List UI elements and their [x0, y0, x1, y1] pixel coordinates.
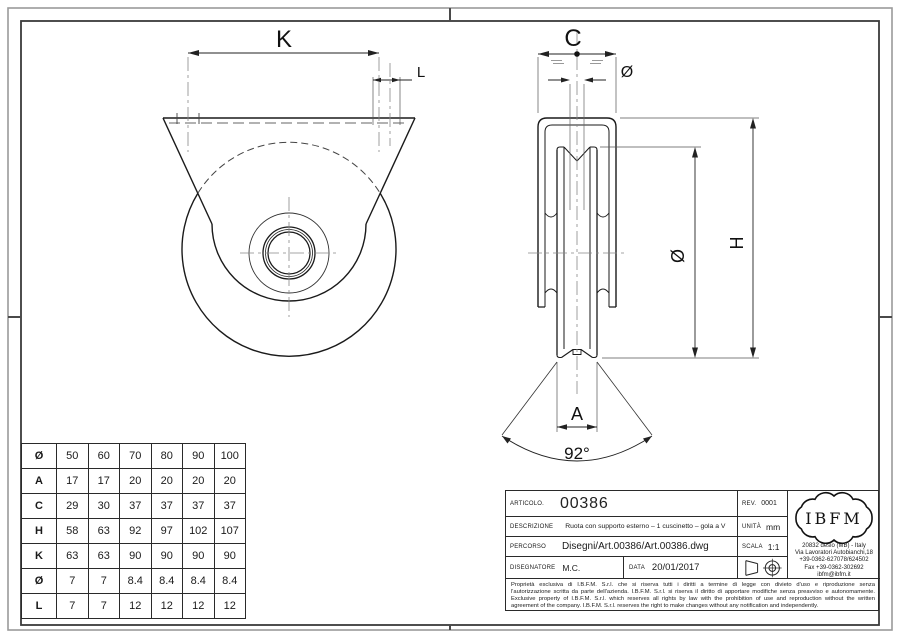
- table-cell: 63: [57, 544, 89, 569]
- table-cell: 90: [120, 544, 152, 569]
- table-cell: 100: [214, 444, 246, 469]
- table-cell: 7: [88, 569, 120, 594]
- row-header: Ø: [22, 569, 57, 594]
- copyright-line: agreement of the company. I.B.F.M. S.r.l…: [511, 603, 875, 610]
- table-cell: 107: [214, 519, 246, 544]
- percorso-cell: PERCORSO Disegni/Art.00386/Art.00386.dwg: [506, 537, 738, 557]
- table-cell: 80: [151, 444, 183, 469]
- table-cell: 37: [214, 494, 246, 519]
- front-view-drawing: K L: [163, 26, 425, 356]
- table-cell: 7: [57, 569, 89, 594]
- descrizione-label: DESCRIZIONE: [510, 524, 553, 530]
- dimension-outer-dia: Ø: [668, 147, 698, 358]
- table-cell: 30: [88, 494, 120, 519]
- table-cell: 7: [57, 594, 89, 619]
- table-cell: 37: [183, 494, 215, 519]
- table-cell: 92: [120, 519, 152, 544]
- logo-text: IBFM: [805, 509, 863, 528]
- rev-label: REV.: [742, 501, 756, 507]
- table-cell: 12: [214, 594, 246, 619]
- table-cell: 8.4: [120, 569, 152, 594]
- table-cell: 60: [88, 444, 120, 469]
- h-dimension-label: H: [727, 237, 747, 250]
- dimension-L: L: [373, 63, 425, 146]
- percorso-label: PERCORSO: [510, 544, 546, 550]
- copyright-line: Exclusive property of I.B.F.M. S.r.l. wh…: [511, 596, 875, 603]
- data-label: DATA: [629, 565, 645, 571]
- front-centerlines: [240, 197, 339, 317]
- rev-cell: REV. 0001: [738, 491, 788, 517]
- percorso-value: Disegni/Art.00386/Art.00386.dwg: [562, 541, 709, 552]
- table-cell: 7: [88, 594, 120, 619]
- unita-value: mm: [766, 522, 780, 532]
- first-angle-projection-icon: [738, 557, 787, 579]
- side-centerlines: [528, 31, 628, 394]
- table-cell: 20: [151, 469, 183, 494]
- side-view-drawing: C Ø Ø H: [502, 25, 759, 463]
- address-line: ibfm@ibfm.it: [788, 572, 880, 579]
- copyright-notice: Proprietà esclusiva di I.B.F.M. S.r.l. c…: [506, 579, 880, 612]
- table-cell: 37: [120, 494, 152, 519]
- data-cell: DATA 20/01/2017: [624, 557, 738, 579]
- rev-value: 0001: [761, 500, 777, 507]
- table-cell: 58: [57, 519, 89, 544]
- dimension-K: K: [188, 26, 379, 152]
- articolo-label: ARTICOLO.: [510, 501, 544, 507]
- row-header: Ø: [22, 444, 57, 469]
- dimension-table: Ø 50 60 70 80 90 100 A 17 17 20 20 20 20…: [21, 443, 246, 619]
- groove-angle-label: 92°: [564, 444, 590, 463]
- a-dimension-label: A: [571, 404, 583, 424]
- table-cell: 12: [151, 594, 183, 619]
- unita-cell: UNITÀ mm: [738, 517, 788, 537]
- row-header: H: [22, 519, 57, 544]
- table-cell: 90: [183, 444, 215, 469]
- unita-label: UNITÀ: [742, 524, 761, 530]
- table-cell: 12: [120, 594, 152, 619]
- table-cell: 12: [183, 594, 215, 619]
- disegnatore-value: M.C.: [562, 563, 580, 573]
- company-logo: IBFM: [788, 491, 880, 544]
- row-header: C: [22, 494, 57, 519]
- copyright-line: l'autorizzazione scritta da parte dell'a…: [511, 589, 875, 596]
- dimension-A: A: [557, 362, 597, 432]
- table-cell: 37: [151, 494, 183, 519]
- table-row: Ø 50 60 70 80 90 100: [22, 444, 246, 469]
- table-row: L 7 7 12 12 12 12: [22, 594, 246, 619]
- disegnatore-label: DISEGNATORE: [510, 565, 555, 571]
- drawing-sheet: K L: [0, 0, 900, 635]
- table-cell: 20: [183, 469, 215, 494]
- c-dimension-label: C: [564, 25, 581, 52]
- row-header: K: [22, 544, 57, 569]
- table-cell: 20: [214, 469, 246, 494]
- table-row: A 17 17 20 20 20 20: [22, 469, 246, 494]
- table-cell: 20: [120, 469, 152, 494]
- address-line: 20832 desio (MB) - Italy: [788, 543, 880, 550]
- table-cell: 63: [88, 519, 120, 544]
- scala-label: SCALA: [742, 544, 763, 550]
- table-cell: 90: [183, 544, 215, 569]
- dimension-H: H: [727, 118, 756, 358]
- wheel-outline-hidden: [198, 142, 380, 193]
- table-cell: 70: [120, 444, 152, 469]
- disegnatore-cell: DISEGNATORE M.C.: [506, 557, 624, 579]
- table-cell: 29: [57, 494, 89, 519]
- k-dimension-label: K: [276, 26, 292, 53]
- articolo-value: 00386: [560, 495, 609, 513]
- table-cell: 8.4: [214, 569, 246, 594]
- dimension-hole-dia: Ø: [548, 64, 633, 83]
- articolo-cell: ARTICOLO. 00386: [506, 491, 738, 517]
- projection-symbol-cell: [738, 557, 788, 579]
- table-cell: 102: [183, 519, 215, 544]
- hole-dia-label: Ø: [621, 64, 633, 81]
- centerline-dot: [574, 51, 580, 57]
- address-line: Fax +39-0362-302692: [788, 565, 880, 572]
- table-cell: 17: [57, 469, 89, 494]
- l-dimension-label: L: [417, 64, 425, 81]
- data-value: 20/01/2017: [652, 562, 700, 573]
- title-block: ARTICOLO. 00386 REV. 0001 DESCRIZIONE Ru…: [505, 490, 879, 611]
- table-cell: 97: [151, 519, 183, 544]
- company-address: 20832 desio (MB) - Italy Via Lavoratori …: [788, 543, 880, 579]
- table-cell: 63: [88, 544, 120, 569]
- table-row: K 63 63 90 90 90 90: [22, 544, 246, 569]
- table-row: Ø 7 7 8.4 8.4 8.4 8.4: [22, 569, 246, 594]
- scala-value: 1:1: [768, 542, 780, 552]
- table-row: C 29 30 37 37 37 37: [22, 494, 246, 519]
- descrizione-value: Ruota con supporto esterno – 1 cuscinett…: [565, 523, 725, 530]
- copyright-line: Proprietà esclusiva di I.B.F.M. S.r.l. c…: [511, 582, 875, 589]
- address-line: +39-0362-627078/624502: [788, 557, 880, 564]
- scala-cell: SCALA 1:1: [738, 537, 788, 557]
- table-cell: 8.4: [183, 569, 215, 594]
- table-cell: 17: [88, 469, 120, 494]
- address-line: Via Lavoratori Autobianchi,18: [788, 550, 880, 557]
- row-header: L: [22, 594, 57, 619]
- table-cell: 90: [151, 544, 183, 569]
- outer-dia-label: Ø: [668, 249, 688, 263]
- descrizione-cell: DESCRIZIONE Ruota con supporto esterno –…: [506, 517, 738, 537]
- row-header: A: [22, 469, 57, 494]
- table-cell: 50: [57, 444, 89, 469]
- table-row: H 58 63 92 97 102 107: [22, 519, 246, 544]
- ibfm-cloud-logo-icon: IBFM: [788, 491, 880, 544]
- table-cell: 90: [214, 544, 246, 569]
- table-cell: 8.4: [151, 569, 183, 594]
